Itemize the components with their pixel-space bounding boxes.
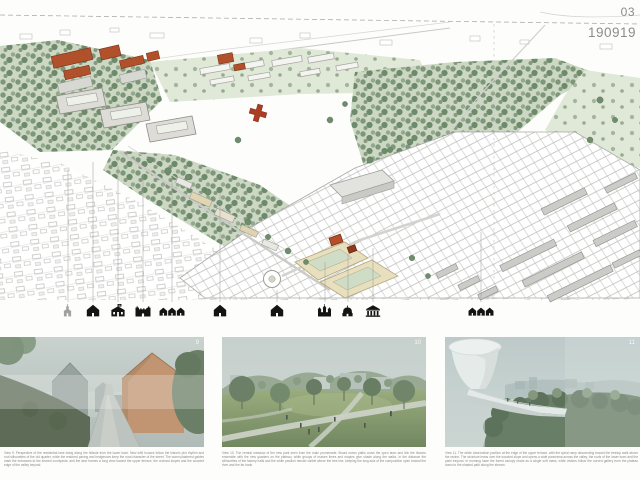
view-number-label: 9 [196,340,199,346]
view-number-label: 10 [414,340,421,346]
sheet-number: 03 [621,6,635,18]
figure-caption: View 11. The white observation pavilion … [445,451,638,468]
view-number-label: 11 [629,340,635,346]
roundabout [264,271,281,288]
render-pavilion-view: 11 [445,337,640,447]
top-dashed-border [0,15,640,24]
sheet-date-code: 190919 [588,26,636,40]
figure-caption: View 10. The central meadow of the new p… [222,451,426,468]
red-star-building [247,102,268,123]
render-street-view: 9 [0,337,204,447]
masterplan-axonometric-map [0,0,640,335]
figure-caption: View 9. Perspective of the residential l… [4,451,204,468]
render-park-view: 10 [222,337,426,447]
competition-board: 03 190919 [0,0,640,480]
